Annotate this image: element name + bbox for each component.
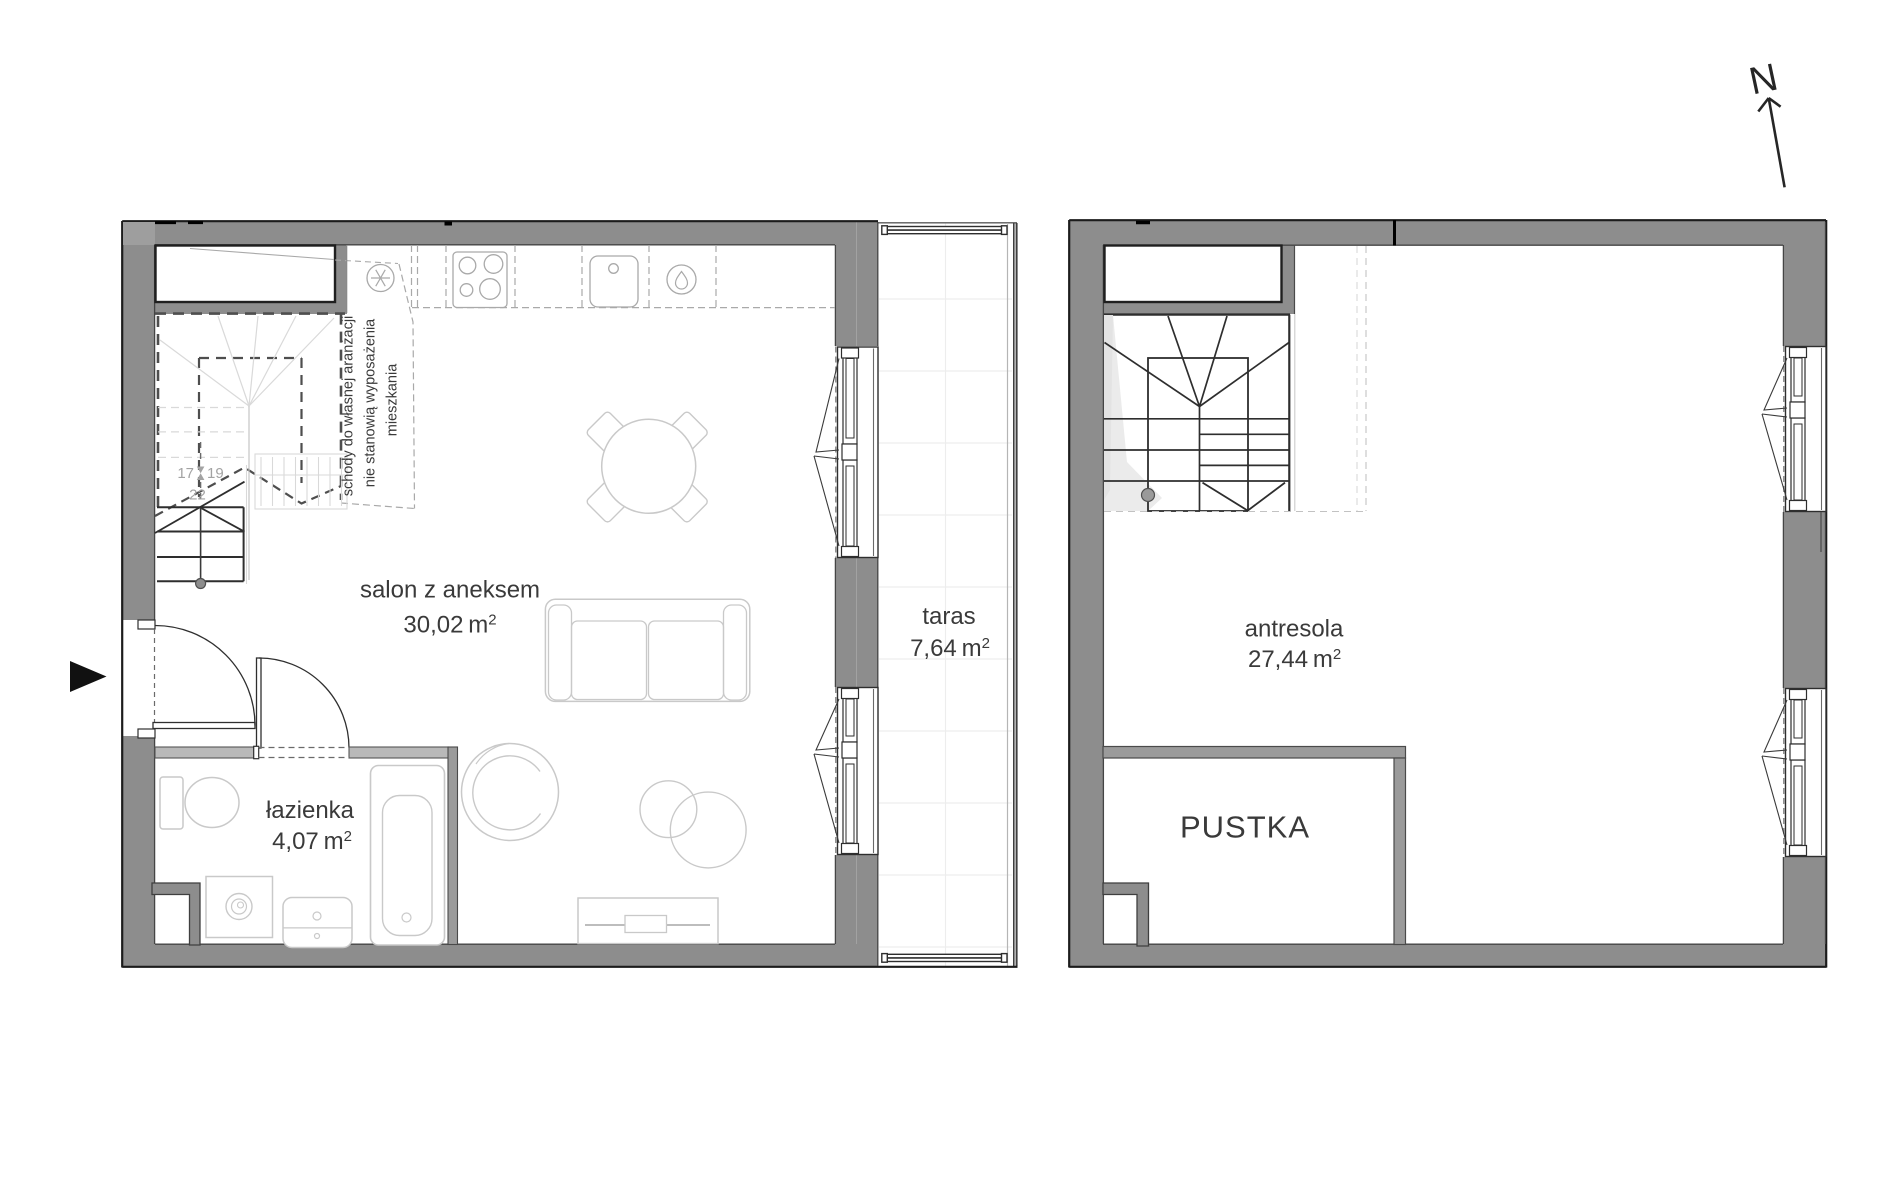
svg-text:7,64 m2: 7,64 m2 xyxy=(910,635,990,662)
svg-text:19: 19 xyxy=(207,465,224,482)
svg-text:taras: taras xyxy=(922,603,975,630)
svg-text:antresola: antresola xyxy=(1245,616,1344,643)
svg-text:17: 17 xyxy=(177,465,194,482)
svg-text:schody do własnej aranżacji: schody do własnej aranżacji xyxy=(341,316,357,497)
svg-text:nie stanowią wyposażenia: nie stanowią wyposażenia xyxy=(363,318,379,487)
svg-text:4,07 m2: 4,07 m2 xyxy=(272,828,352,855)
svg-text:PUSTKA: PUSTKA xyxy=(1180,810,1310,845)
svg-text:mieszkania: mieszkania xyxy=(385,363,401,436)
svg-text:27,44 m2: 27,44 m2 xyxy=(1248,646,1341,673)
svg-text:22: 22 xyxy=(189,487,206,504)
svg-text:30,02 m2: 30,02 m2 xyxy=(403,612,496,639)
svg-text:łazienka: łazienka xyxy=(266,797,355,824)
svg-text:salon z aneksem: salon z aneksem xyxy=(360,577,540,604)
